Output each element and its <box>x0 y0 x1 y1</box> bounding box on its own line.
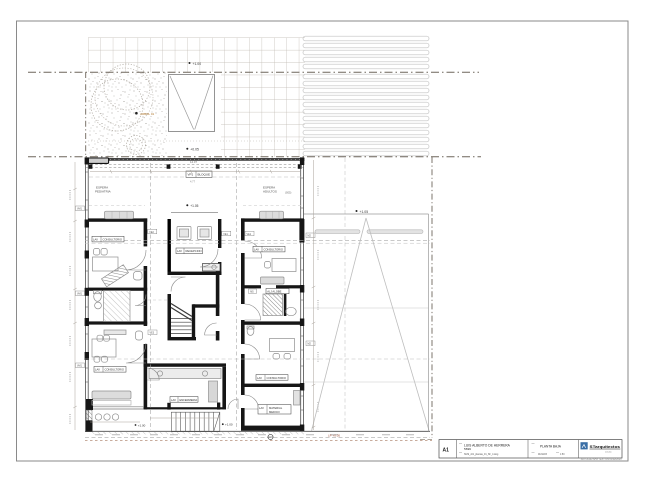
svg-text:VE1: VE1 <box>247 233 252 236</box>
svg-text:ALJ ALJIBE: ALJ ALJIBE <box>267 290 281 294</box>
svg-text:ADULTOS: ADULTOS <box>263 190 277 194</box>
svg-text:5699: 5699 <box>464 447 471 451</box>
svg-text:LAV: LAV <box>171 398 176 402</box>
svg-text:PLANTA BAJA: PLANTA BAJA <box>540 444 562 448</box>
svg-text:VM1: VM1 <box>77 365 83 368</box>
svg-text:+1.00: +1.00 <box>138 424 146 428</box>
svg-text:LAV: LAV <box>257 376 262 380</box>
svg-text:VM1: VM1 <box>77 293 83 296</box>
svg-text:LAV: LAV <box>177 249 182 253</box>
svg-text:CONSULTORIO: CONSULTORIO <box>105 368 124 372</box>
svg-text:LAV: LAV <box>259 406 264 410</box>
svg-text:STarquitectos: STarquitectos <box>590 444 621 449</box>
svg-text:VE2: VE2 <box>149 231 154 234</box>
svg-text:estudio: estudio <box>605 450 612 453</box>
svg-text:(S05): (S05) <box>285 191 291 195</box>
svg-text:LUIS ALBERTO DE HERRERA: LUIS ALBERTO DE HERRERA <box>464 443 511 447</box>
svg-text:LAV: LAV <box>95 368 100 372</box>
svg-text:VE3: VE3 <box>150 332 155 335</box>
svg-text:AUTOCAD SHX TEXT ON 01/02/2023: AUTOCAD SHX TEXT ON 01/02/2023 <box>581 458 622 461</box>
svg-text:ARBOL 01: ARBOL 01 <box>140 112 155 116</box>
svg-text:LAV: LAV <box>93 238 98 242</box>
svg-text:ENFERMERIA: ENFERMERIA <box>180 398 198 402</box>
svg-text:+1.05: +1.05 <box>190 204 198 208</box>
svg-text:SUM_v01_plantas_01_SF_4.dwg: SUM_v01_plantas_01_SF_4.dwg <box>464 453 499 456</box>
svg-text:+1.00: +1.00 <box>193 62 202 66</box>
svg-text:01/02/23: 01/02/23 <box>538 454 548 456</box>
svg-text:+1.00: +1.00 <box>225 423 233 427</box>
svg-text:VM1: VM1 <box>77 208 83 211</box>
svg-text:CONSULTORIO: CONSULTORIO <box>264 248 283 252</box>
svg-text:+1.05: +1.05 <box>360 210 369 214</box>
svg-text:PEDIATRIA: PEDIATRIA <box>95 190 111 194</box>
svg-text:VP1: VP1 <box>188 173 194 177</box>
svg-text:14.07: 14.07 <box>190 160 197 164</box>
svg-text:MATERIAL: MATERIAL <box>269 406 283 410</box>
svg-text:MEDICO: MEDICO <box>269 410 280 414</box>
svg-text:CONSULTORIO: CONSULTORIO <box>103 238 122 242</box>
svg-text:A1: A1 <box>443 447 450 453</box>
svg-text:CONSULTORIO: CONSULTORIO <box>267 376 286 380</box>
svg-text:LP +0.05: LP +0.05 <box>328 434 340 438</box>
svg-text:BLOQUE: BLOQUE <box>198 173 211 177</box>
svg-text:4.77: 4.77 <box>190 179 196 183</box>
svg-text:LAV: LAV <box>254 248 259 252</box>
svg-text:1:50: 1:50 <box>560 454 565 456</box>
svg-text:RECEPCION: RECEPCION <box>186 249 202 253</box>
svg-text:+0.05: +0.05 <box>190 148 199 152</box>
svg-text:VE1: VE1 <box>223 233 228 236</box>
